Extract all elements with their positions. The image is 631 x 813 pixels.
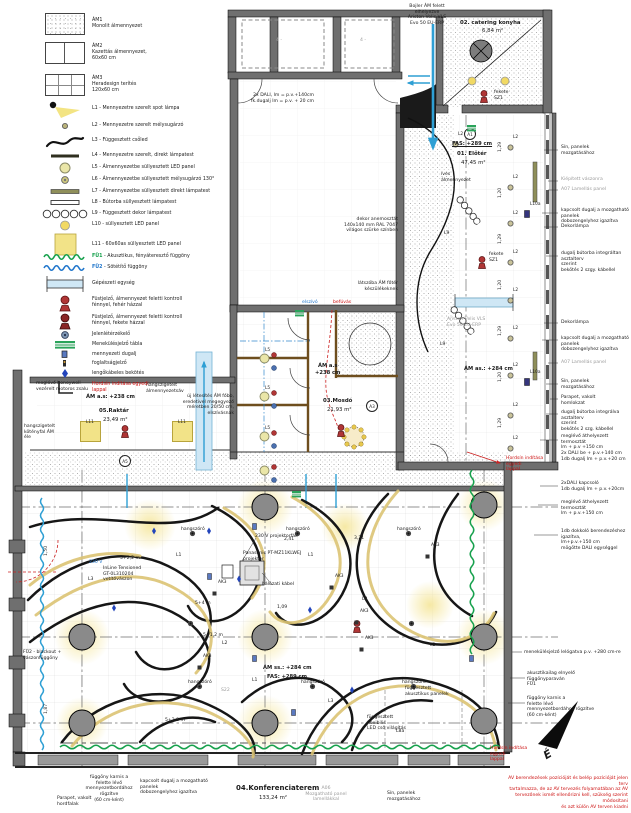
decor-lamp-dot-icon	[362, 435, 366, 439]
l2-icon	[42, 122, 88, 130]
legend-item: mennyezeti dugalj	[42, 350, 136, 359]
legend-item-label: L4 - Mennyezetre szerelt, direkt lámpate…	[92, 153, 194, 159]
legend-item: L6 - Álmennyezetbe süllyesztett mélysugá…	[42, 174, 214, 186]
fj1-icon	[42, 295, 88, 312]
l3-icon	[42, 134, 88, 149]
legend-item-label: L3 - Függesztett csőled	[92, 138, 148, 144]
fog-icon	[42, 359, 88, 368]
decor-lamp-dot-icon	[345, 428, 349, 432]
decor-lamp-dot-icon	[352, 445, 356, 449]
legend-item-label: L1 - Mennyezetre szerelt spot lámpa	[92, 106, 180, 112]
legend-item-label: foglaltságjelző	[92, 361, 127, 367]
legend-item-label: ÁM2 Kazettás álmennyezet, 60x60 cm	[92, 44, 147, 62]
legend-item: L2 - Mennyezetre szerelt mélysugárzó	[42, 120, 183, 132]
legend-item: L3 - Függesztett csőled	[42, 132, 148, 150]
legend-item: Menekülésjelző tábla	[42, 340, 142, 350]
legend-item: L10 - süllyesztett LED panel	[42, 219, 159, 231]
legend-item: Gépészeti egység	[42, 274, 135, 294]
jel-icon	[42, 330, 88, 340]
decor-lamp-dot-icon	[345, 442, 349, 446]
legend-item: lengőkábeles bekötés	[42, 368, 144, 379]
legend-item-label: Füstjelző, álmennyezet feletti kontroll …	[92, 297, 182, 309]
l8-icon	[42, 199, 88, 206]
legend-item: L4 - Mennyezetre szerelt, direkt lámpate…	[42, 150, 194, 161]
fu1-icon	[42, 252, 88, 262]
legend-item-label: Füstjelző, álmennyezet feletti kontroll …	[92, 315, 182, 327]
decor-lamp-dot-icon	[352, 425, 356, 429]
len-icon	[42, 368, 88, 379]
l4-icon	[42, 153, 88, 159]
legend-item-label: Jelenlétérzékelő	[92, 332, 130, 338]
legend-item-label: ÁM3 Heradesign terítés 120x60 cm	[92, 76, 136, 94]
am1-icon	[42, 13, 88, 35]
l6-icon	[42, 175, 88, 185]
legend-item: Jelenlétérzékelő	[42, 330, 130, 340]
legend-item: L9 - Függesztett dekor lámpatest	[42, 208, 171, 219]
legend-item-label: L5 - Álmennyezetbe süllyesztett LED pane…	[92, 165, 195, 171]
legend-item-label: mennyezeti dugalj	[92, 352, 136, 358]
legend-item: foglaltságjelző	[42, 359, 127, 368]
legend-item: ÁM1 Monolit álmennyezet	[42, 10, 142, 38]
legend-item-label: Gépészeti egység	[92, 281, 135, 287]
men-icon	[42, 340, 88, 350]
legend-item: L7 - Álmennyezetbe süllyesztett direkt l…	[42, 186, 210, 197]
fu2-icon	[42, 263, 88, 273]
legend-item-label: L8 - Bútorba süllyesztett lámpatest	[92, 200, 176, 206]
mech-icon	[42, 275, 88, 293]
legend-item-label: L6 - Álmennyezetbe süllyesztett mélysugá…	[92, 177, 214, 183]
decor-lamp-dot-icon	[359, 428, 363, 432]
legend-item: FÜ1 - Akusztikus, fényáteresztő függöny	[42, 251, 190, 262]
legend-item-label: L7 - Álmennyezetbe süllyesztett direkt l…	[92, 189, 210, 195]
legend-item-label: Hordsín indítása egyedi lappal	[92, 382, 149, 394]
legend-item: FÜ2 - Sötétítő függöny	[42, 262, 147, 274]
legend-item: L8 - Bútorba süllyesztett lámpatest	[42, 197, 176, 208]
legend-item-label: FÜ1 - Akusztikus, fényáteresztő függöny	[92, 254, 190, 260]
decor-lamp-dot-icon	[359, 442, 363, 446]
legend-item-label: lengőkábeles bekötés	[92, 371, 144, 377]
legend-item-label: FÜ2 - Sötétítő függöny	[92, 265, 147, 271]
legend-item-label: L11 - 60x60as süllyesztett LED panel	[92, 242, 181, 248]
am2-icon	[42, 42, 88, 64]
legend-item: ÁM3 Heradesign terítés 120x60 cm	[42, 70, 136, 100]
l1-icon	[42, 101, 88, 118]
legend-item-label: L9 - Függesztett dekor lámpatest	[92, 211, 171, 217]
dug-icon	[42, 350, 88, 359]
legend-item: L5 - Álmennyezetbe süllyesztett LED pane…	[42, 161, 195, 174]
legend-item: Füstjelző, álmennyezet feletti kontroll …	[42, 294, 182, 312]
legend-item: Hordsín indítása egyedi lappal	[42, 379, 149, 397]
decor-lamp-dot-icon	[342, 435, 346, 439]
l9-icon	[42, 209, 88, 219]
legend-item-label: ÁM1 Monolit álmennyezet	[92, 18, 142, 30]
legend-item-label: Menekülésjelző tábla	[92, 342, 142, 348]
legend-item: Füstjelző, álmennyezet feletti kontroll …	[42, 312, 182, 330]
legend-item: ÁM2 Kazettás álmennyezet, 60x60 cm	[42, 38, 147, 68]
legend: ÁM1 Monolit álmennyezetÁM2 Kazettás álme…	[42, 4, 252, 386]
hor-icon	[42, 379, 88, 397]
l10-icon	[42, 220, 88, 231]
fj2-icon	[42, 313, 88, 330]
legend-item-label: L2 - Mennyezetre szerelt mélysugárzó	[92, 123, 183, 129]
l7-icon	[42, 188, 88, 195]
legend-item-label: L10 - süllyesztett LED panel	[92, 222, 159, 228]
am3-icon	[42, 74, 88, 96]
floor-plan-sheet: L2L2L2L2L2L2L2L2L2L2A1A3A5L5L5L5L10aL10a…	[0, 0, 631, 813]
legend-item: L1 - Mennyezetre szerelt spot lámpa	[42, 98, 180, 120]
l5-icon	[42, 162, 88, 174]
